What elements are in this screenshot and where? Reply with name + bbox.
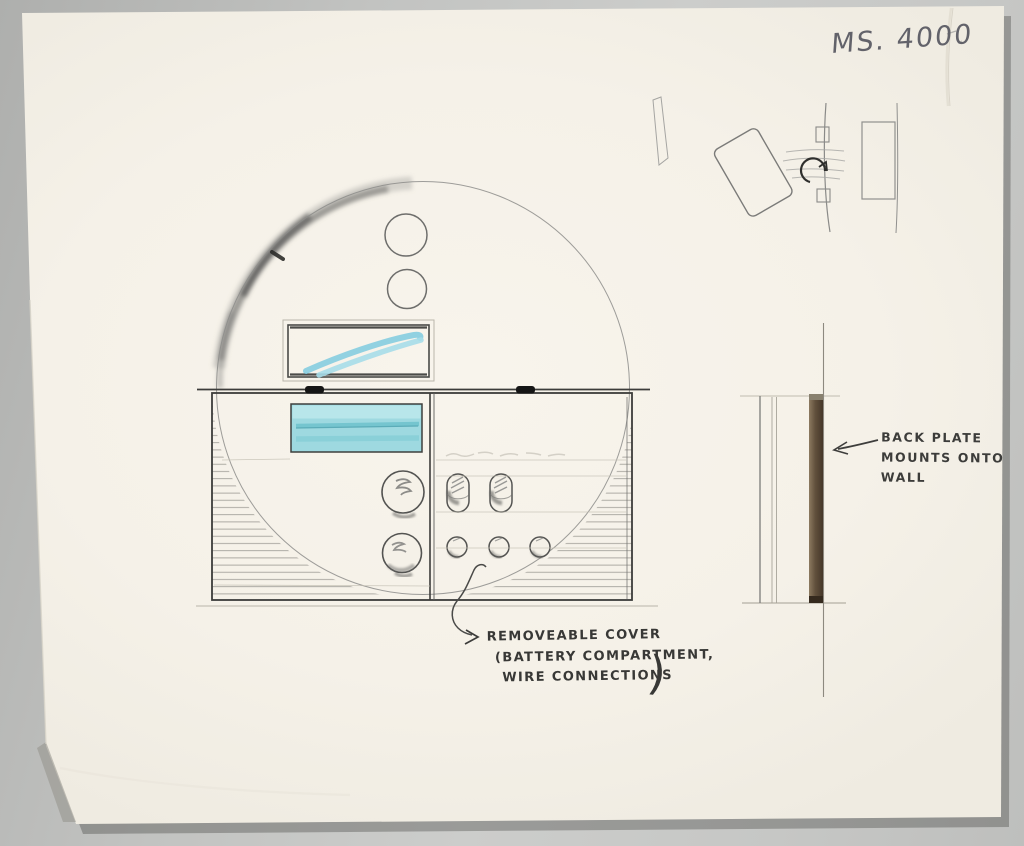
back-plate-strip [809, 394, 823, 602]
sensor-circle-bottom [388, 270, 427, 309]
display-window [283, 320, 434, 381]
display-needle-swoosh-1 [306, 335, 420, 371]
removable-cover-note-line1: REMOVEABLE COVER [487, 625, 715, 646]
sliver-shape [653, 97, 668, 165]
back-plate-note-line3: WALL [881, 469, 1005, 487]
blue-panel [291, 404, 422, 452]
round-button-3 [530, 537, 550, 557]
cover-note-arrowhead [465, 630, 478, 644]
scanned-sketch-page: MS. 4000 BACK PLATE MOUNTS ONTO WALL REM… [0, 0, 1024, 846]
pill-button-left [447, 474, 469, 512]
mounting-detail-sketches [653, 31, 962, 233]
profile-view [740, 323, 878, 697]
rotate-arrow [801, 158, 825, 182]
front-view [196, 176, 658, 644]
removable-cover-note: REMOVEABLE COVER (BATTERY COMPARTMENT, W… [487, 625, 715, 690]
removable-cover-note-line2: (BATTERY COMPARTMENT, [495, 646, 715, 667]
hinge-detail [783, 103, 845, 232]
rim-shading [219, 183, 412, 388]
pill-button-right [490, 474, 512, 512]
tilted-cover-sketch [712, 127, 794, 219]
wall-plate-sketch [862, 103, 898, 233]
back-plate-note-line1: BACK PLATE [881, 429, 1005, 447]
clip-left [305, 386, 324, 394]
back-plate-note: BACK PLATE MOUNTS ONTO WALL [881, 429, 1005, 490]
back-plate-top-cap [809, 394, 823, 400]
round-button-2 [489, 537, 509, 557]
pencil-sketch-svg [0, 0, 1024, 846]
sensor-circle-top [385, 214, 427, 256]
back-plate-bottom-cap [809, 596, 823, 603]
round-button-1 [447, 537, 467, 557]
removable-cover-note-line3: WIRE CONNECTIONS [502, 667, 715, 688]
back-plate-note-line2: MOUNTS ONTO [881, 449, 1005, 467]
clip-right [516, 386, 535, 394]
